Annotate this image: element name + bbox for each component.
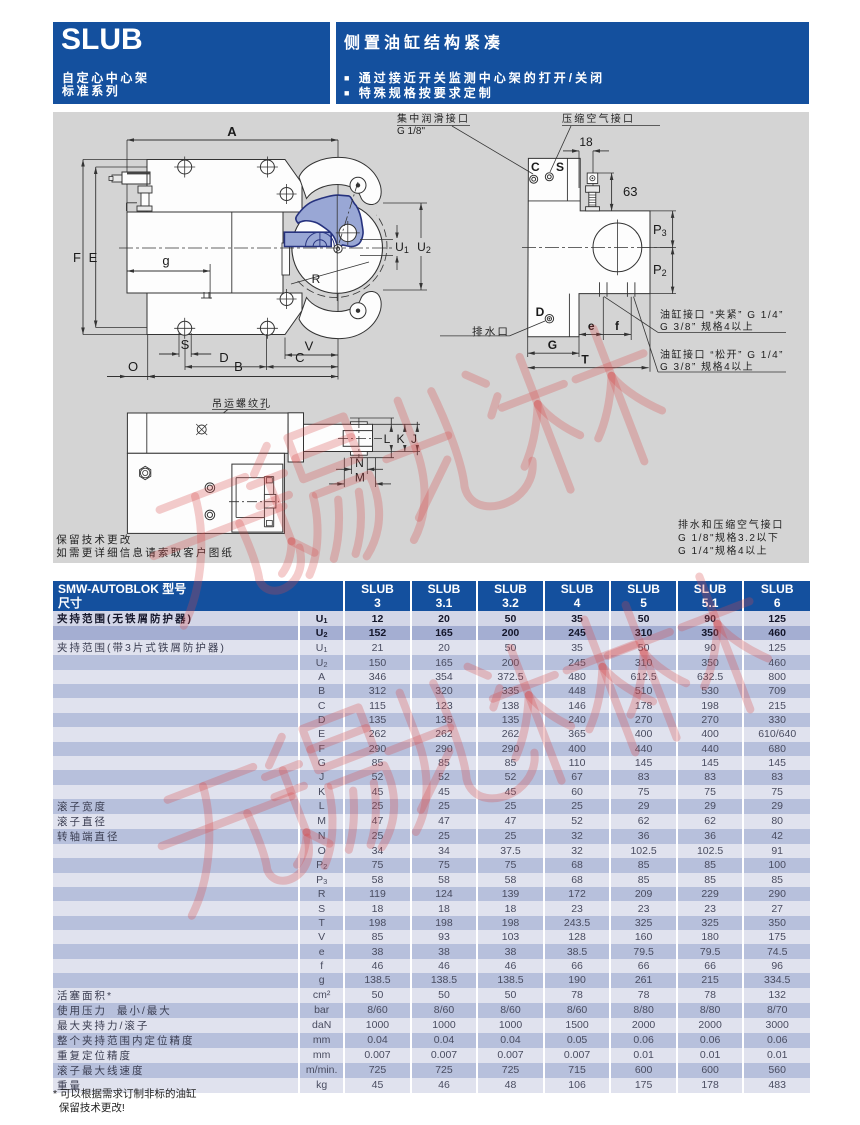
svg-text:F: F xyxy=(73,250,81,265)
svg-text:保留技术更改: 保留技术更改 xyxy=(56,533,132,546)
svg-text:D: D xyxy=(536,305,545,319)
svg-text:J: J xyxy=(411,432,417,446)
svg-text:R: R xyxy=(312,272,321,286)
svg-text:G: G xyxy=(548,338,557,352)
svg-text:油缸接口 “夹紧” G 1/4”: 油缸接口 “夹紧” G 1/4” xyxy=(660,308,784,321)
svg-text:N: N xyxy=(355,456,364,470)
svg-text:T: T xyxy=(581,353,589,367)
svg-text:O: O xyxy=(128,359,138,374)
svg-text:L: L xyxy=(384,432,391,446)
svg-text:63: 63 xyxy=(623,184,637,199)
svg-text:如需更详细信息请索取客户图纸: 如需更详细信息请索取客户图纸 xyxy=(56,546,234,559)
svg-text:B: B xyxy=(234,359,243,374)
svg-text:油缸接口 “松开” G 1/4”: 油缸接口 “松开” G 1/4” xyxy=(660,348,784,361)
svg-text:E: E xyxy=(89,250,98,265)
svg-text:D: D xyxy=(219,350,228,365)
svg-text:G 1/8": G 1/8" xyxy=(397,126,425,137)
svg-text:吊运螺纹孔: 吊运螺纹孔 xyxy=(212,397,272,410)
svg-text:G 1/8"规格3.2以下: G 1/8"规格3.2以下 xyxy=(678,531,779,544)
svg-text:G 3/8” 规格4以上: G 3/8” 规格4以上 xyxy=(660,360,754,373)
svg-text:A: A xyxy=(227,124,237,139)
svg-text:S: S xyxy=(556,160,564,174)
svg-text:M: M xyxy=(355,471,365,485)
svg-text:C: C xyxy=(531,160,540,174)
svg-text:18: 18 xyxy=(579,135,593,149)
svg-text:g: g xyxy=(162,253,169,268)
svg-text:K: K xyxy=(396,432,404,446)
svg-text:G 3/8” 规格4以上: G 3/8” 规格4以上 xyxy=(660,320,754,333)
svg-text:排水和压缩空气接口: 排水和压缩空气接口 xyxy=(678,518,784,531)
svg-text:集中润滑接口: 集中润滑接口 xyxy=(397,112,470,125)
svg-text:e: e xyxy=(588,319,595,333)
svg-text:压缩空气接口: 压缩空气接口 xyxy=(562,112,635,125)
svg-text:V: V xyxy=(305,339,314,354)
svg-text:C: C xyxy=(295,350,304,365)
svg-text:G 1/4"规格4以上: G 1/4"规格4以上 xyxy=(678,544,768,557)
